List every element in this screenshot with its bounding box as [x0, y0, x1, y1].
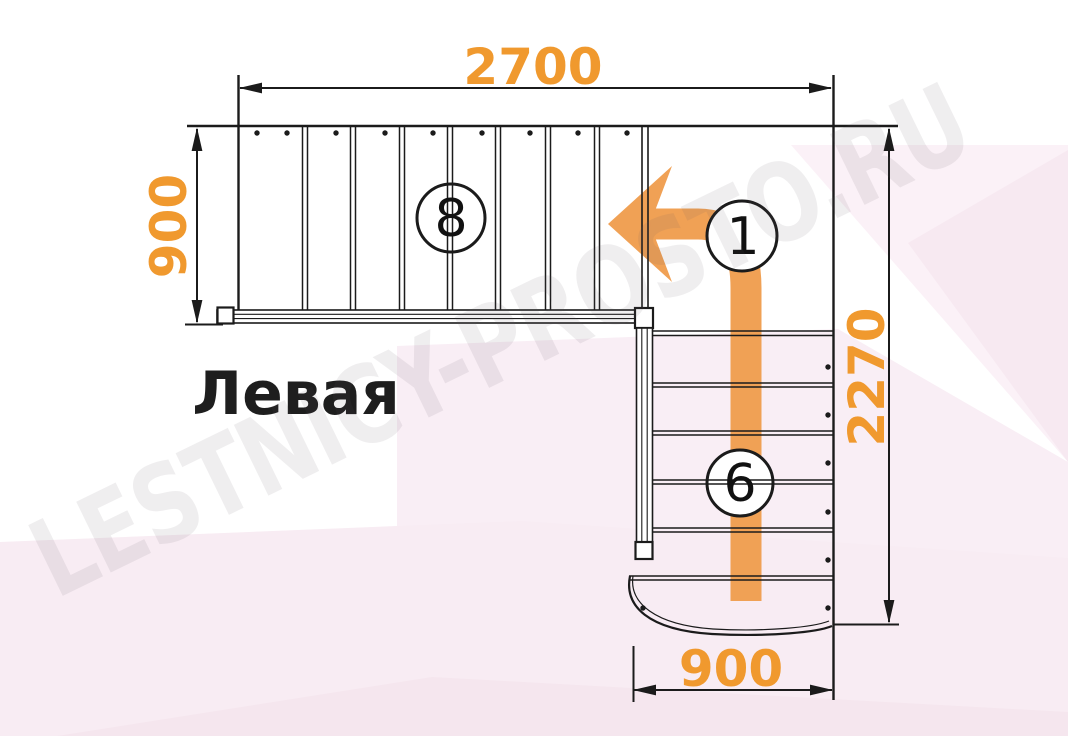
newel-post-top-left [218, 308, 234, 324]
staircase-plan-canvas: 8 1 6 2700 900 2270 900 Левая LESTNICY-P… [0, 0, 1068, 736]
dim-label-top-2700: 2700 [463, 38, 602, 96]
dim-label-left-900: 900 [140, 174, 198, 278]
newel-post-bottom [636, 542, 653, 559]
dim-arrow [239, 83, 262, 94]
baluster-dots-upper [254, 130, 629, 135]
dim-arrow [192, 128, 203, 152]
lower-stringer [637, 328, 653, 558]
dim-arrow [192, 300, 203, 324]
plan-title: Левая [192, 359, 400, 429]
dim-label-bottom-900: 900 [679, 640, 783, 698]
dim-label-right-2270: 2270 [838, 307, 896, 446]
upper-flight [187, 75, 898, 331]
newel-post-corner [635, 308, 653, 328]
staircase-plan-drawing: 8 1 6 2700 900 2270 900 Левая [0, 0, 1068, 736]
dim-arrow [884, 128, 895, 152]
first-step-number: 1 [726, 207, 759, 267]
lower-flight-step-count: 6 [723, 454, 756, 514]
dim-arrow [809, 83, 832, 94]
upper-stringer [217, 310, 653, 323]
upper-flight-step-count: 8 [434, 189, 467, 249]
